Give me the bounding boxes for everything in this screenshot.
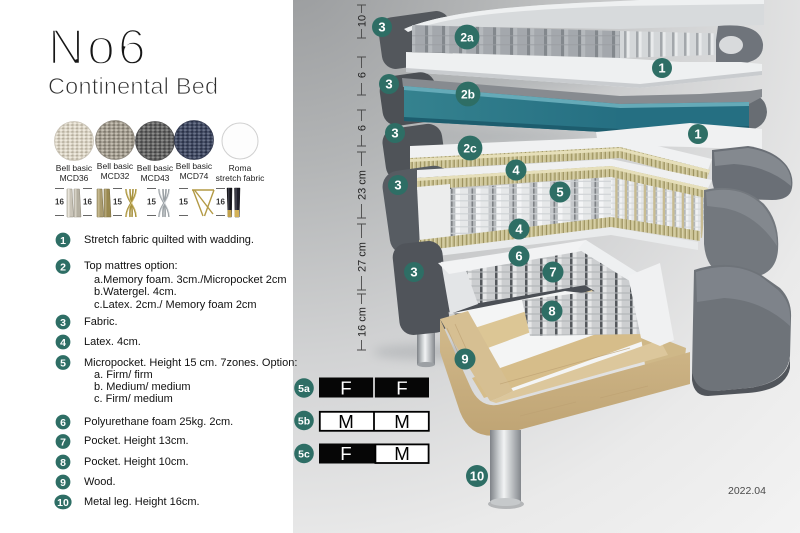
svg-text:10: 10: [57, 497, 69, 509]
svg-text:1: 1: [694, 127, 701, 142]
svg-text:6: 6: [515, 249, 522, 264]
svg-text:16: 16: [83, 198, 92, 207]
svg-text:15: 15: [113, 198, 122, 207]
svg-text:8: 8: [60, 457, 66, 469]
svg-text:6: 6: [357, 72, 369, 78]
svg-text:2b: 2b: [461, 88, 475, 102]
svg-text:2a: 2a: [460, 31, 474, 45]
svg-text:9: 9: [60, 477, 66, 489]
svg-text:7: 7: [60, 436, 66, 448]
svg-text:F: F: [340, 378, 351, 399]
svg-text:M: M: [394, 443, 410, 464]
svg-text:4: 4: [60, 337, 66, 349]
svg-text:3: 3: [391, 126, 398, 141]
svg-text:1: 1: [60, 235, 66, 247]
svg-text:16: 16: [55, 198, 64, 207]
svg-text:15: 15: [147, 198, 156, 207]
svg-text:16: 16: [216, 198, 225, 207]
svg-text:23 cm: 23 cm: [357, 170, 369, 200]
svg-text:5b: 5b: [298, 415, 310, 427]
svg-text:3: 3: [60, 317, 66, 329]
svg-text:6: 6: [357, 125, 369, 131]
svg-text:16 cm: 16 cm: [357, 307, 369, 337]
svg-text:2c: 2c: [463, 142, 477, 156]
svg-text:5c: 5c: [298, 448, 310, 460]
svg-text:3: 3: [385, 77, 392, 92]
svg-text:15: 15: [179, 198, 188, 207]
svg-text:5: 5: [60, 357, 66, 369]
svg-text:5a: 5a: [298, 383, 310, 395]
svg-text:F: F: [396, 378, 407, 399]
svg-text:F: F: [340, 443, 351, 464]
svg-text:27 cm: 27 cm: [357, 242, 369, 272]
svg-text:8: 8: [548, 304, 555, 319]
svg-text:1: 1: [658, 61, 665, 76]
svg-text:M: M: [338, 411, 354, 432]
svg-text:2: 2: [60, 261, 66, 273]
svg-text:3: 3: [378, 20, 385, 35]
svg-text:5: 5: [556, 185, 563, 200]
svg-text:10: 10: [470, 469, 484, 484]
svg-text:3: 3: [410, 265, 417, 280]
svg-text:4: 4: [515, 222, 523, 237]
svg-text:M: M: [394, 411, 410, 432]
svg-text:9: 9: [461, 352, 468, 367]
svg-text:3: 3: [394, 178, 401, 193]
svg-text:4: 4: [512, 163, 520, 178]
svg-text:6: 6: [60, 417, 66, 429]
svg-text:7: 7: [549, 265, 556, 280]
svg-text:10: 10: [357, 15, 369, 27]
